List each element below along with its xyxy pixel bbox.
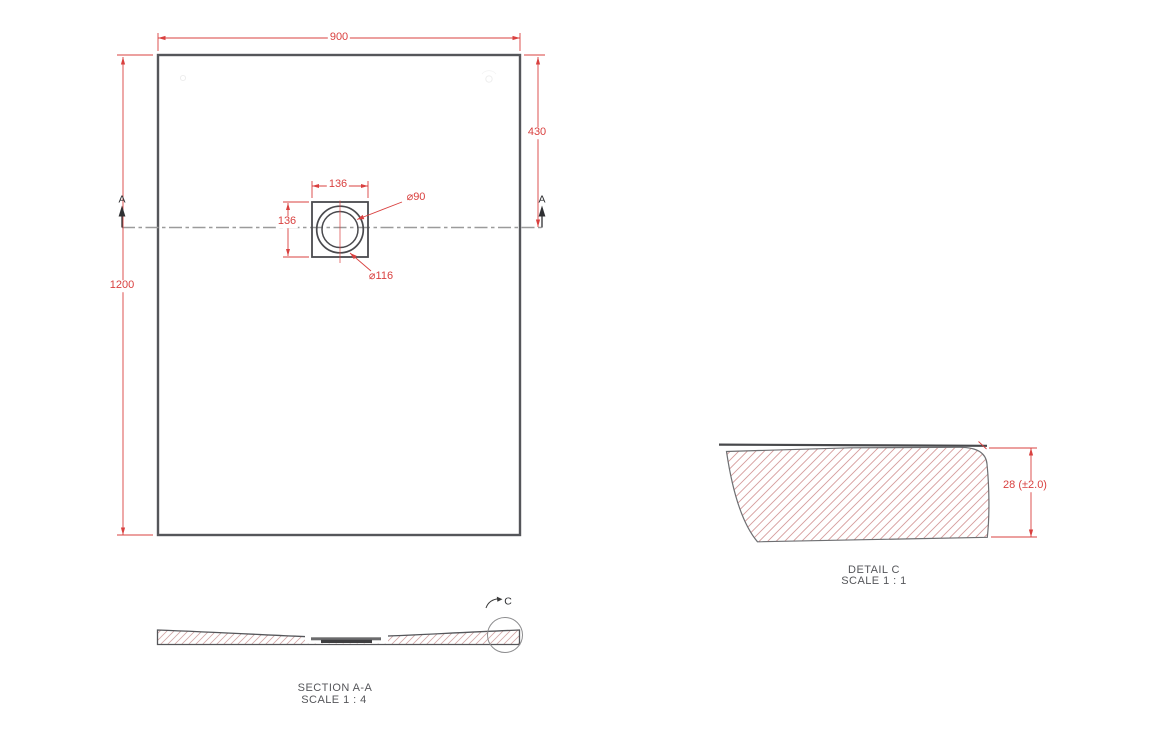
detail-c-leader-arc xyxy=(486,599,499,608)
plan-dimensions xyxy=(117,33,545,535)
dim-drain-width: 136 xyxy=(327,179,349,191)
dim-drain-height: 136 xyxy=(276,216,298,228)
dim-outer-diameter: ⌀116 xyxy=(368,271,394,283)
tray-outline xyxy=(158,55,520,535)
section-marker-a-right: A xyxy=(538,194,545,205)
top-surface-line xyxy=(719,445,987,446)
section-marker-a-left: A xyxy=(118,194,125,205)
section-scale: SCALE 1 : 4 xyxy=(301,695,366,707)
plan-view xyxy=(122,55,545,535)
drawing-linework xyxy=(0,0,1156,742)
section-view xyxy=(158,597,523,653)
dim-height-1200: 1200 xyxy=(108,280,136,292)
detail-body xyxy=(727,447,989,542)
dim-offset-430: 430 xyxy=(526,127,548,139)
surface-texture-marks xyxy=(180,71,496,83)
drain-cover xyxy=(321,640,372,643)
dim-thickness-28: 28 (±2.0) xyxy=(1001,480,1049,492)
detail-marker-c: C xyxy=(504,596,512,607)
drawing-sheet: 900 1200 430 136 136 ⌀90 ⌀116 A A C SECT… xyxy=(0,0,1156,742)
detail-c-arrowhead xyxy=(497,597,503,602)
detail-scale: SCALE 1 : 1 xyxy=(841,576,906,588)
detail-view xyxy=(719,442,1037,542)
dim-inner-diameter: ⌀90 xyxy=(406,192,427,204)
dim-width-900: 900 xyxy=(328,32,350,44)
section-cut-markers xyxy=(119,206,546,228)
